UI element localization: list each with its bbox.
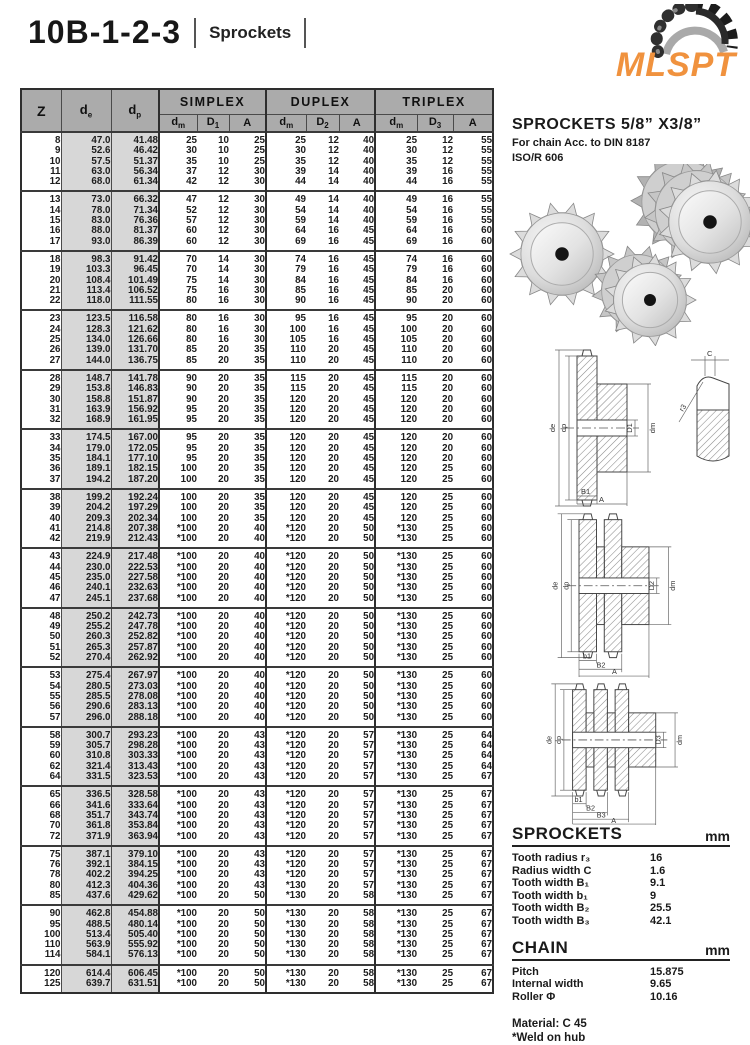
table-row: 32168.9161.9595203512020451202060 (21, 415, 493, 429)
table-cell: 25 (417, 594, 453, 608)
table-cell: 328.58 (111, 786, 159, 800)
table-cell: 20 (417, 384, 453, 394)
table-cell: 631.51 (111, 979, 159, 993)
table-cell: 35 (229, 489, 266, 503)
table-cell: 43 (229, 772, 266, 786)
table-cell: 60 (453, 702, 493, 712)
spec-label: Tooth width B₃ (512, 915, 650, 928)
table-cell: 40 (339, 132, 375, 146)
table-cell: *120 (266, 594, 306, 608)
table-cell: 43 (229, 832, 266, 846)
table-cell: *100 (159, 702, 197, 712)
chain-spec-header: CHAIN mm (512, 938, 730, 961)
table-cell: 90 (375, 296, 417, 310)
dim-label: B2 (586, 804, 595, 813)
table-cell: 86.39 (111, 237, 159, 251)
table-cell: 74 (375, 251, 417, 265)
table-cell: 45 (339, 429, 375, 443)
diagram-triplex-section: de dp D3 dm b1 B2 B3 A (540, 680, 750, 825)
table-cell: 429.62 (111, 891, 159, 905)
table-cell: 55 (453, 177, 493, 191)
table-cell: 153.8 (61, 384, 111, 394)
table-cell: 60 (453, 548, 493, 562)
table-cell: 25 (229, 132, 266, 146)
table-cell: 20 (197, 534, 229, 548)
spec-value: 9.65 (650, 978, 730, 991)
table-cell: 45 (339, 237, 375, 251)
table-cell: 57 (339, 821, 375, 831)
table-cell: 16 (197, 310, 229, 324)
table-cell: 18 (21, 251, 61, 265)
table-cell: *120 (266, 653, 306, 667)
table-cell: 58 (339, 979, 375, 993)
table-row: 22118.0111.55801630901645902060 (21, 296, 493, 310)
brand-logo: MLSPT (606, 4, 746, 84)
table-cell: 67 (453, 846, 493, 860)
table-cell: 146.83 (111, 384, 159, 394)
table-row: 27144.0136.7585203511020451102060 (21, 356, 493, 370)
table-cell: 20 (197, 653, 229, 667)
spec-row: Tooth width b₁9 (512, 890, 730, 903)
table-cell: 20 (306, 905, 339, 919)
table-cell: 20 (197, 846, 229, 860)
group-header-duplex: DUPLEX (266, 89, 375, 114)
table-cell: *120 (266, 727, 306, 741)
spec-row: Pitch15.875 (512, 966, 730, 979)
dim-label: b1 (575, 795, 583, 804)
table-cell: 20 (306, 608, 339, 622)
table-group: 38199.2192.2410020351202045120256039204.… (21, 489, 493, 548)
table-cell: 60 (453, 237, 493, 251)
table-cell: 12 (197, 191, 229, 205)
table-cell: 20 (197, 356, 229, 370)
table-cell: 25 (417, 772, 453, 786)
logo-text: MLSPT (616, 46, 738, 84)
table-cell: 25 (375, 132, 417, 146)
table-cell: *130 (375, 667, 417, 681)
page-title: 10B-1-2-3 (28, 14, 181, 51)
table-cell: *100 (159, 653, 197, 667)
table-cell: *100 (159, 905, 197, 919)
table-cell: 110 (375, 356, 417, 370)
table-cell: 17 (21, 237, 61, 251)
dim-label: de (548, 424, 557, 432)
table-cell: 50 (339, 608, 375, 622)
table-cell: 167.00 (111, 429, 159, 443)
chain-spec-title: CHAIN (512, 938, 568, 958)
table-cell: 70 (21, 821, 61, 831)
table-group: 90462.8454.88*1002050*1302058*1302567954… (21, 905, 493, 964)
table-cell: 58 (339, 891, 375, 905)
table-cell: 20 (306, 415, 339, 429)
table-cell: 25 (417, 821, 453, 831)
table-cell: *130 (375, 905, 417, 919)
table-cell: *100 (159, 891, 197, 905)
table-cell: 20 (306, 891, 339, 905)
table-row: 38199.2192.24100203512020451202560 (21, 489, 493, 503)
spec-value: 9 (650, 890, 730, 903)
table-cell: 14 (306, 177, 339, 191)
table-cell: *100 (159, 727, 197, 741)
table-cell: 20 (197, 370, 229, 384)
table-cell: 27 (21, 356, 61, 370)
table-cell: 50 (339, 594, 375, 608)
table-cell: *130 (375, 548, 417, 562)
table-cell: 60 (453, 489, 493, 503)
weld-note: *Weld on hub (512, 1031, 730, 1045)
table-cell: *120 (266, 608, 306, 622)
spec-row: Internal width9.65 (512, 978, 730, 991)
table-cell: 60 (453, 608, 493, 622)
chain-spec-rows: Pitch15.875Internal width9.65Roller Φ10.… (512, 966, 730, 1004)
table-cell: 50 (229, 950, 266, 964)
table-row: 33174.5167.0095203512020451202060 (21, 429, 493, 443)
table-cell: 323.53 (111, 772, 159, 786)
table-cell: 20 (197, 727, 229, 741)
table-cell: 576.13 (111, 950, 159, 964)
table-cell: 639.7 (61, 979, 111, 993)
table-cell: 50 (229, 891, 266, 905)
table-cell: *120 (266, 667, 306, 681)
table-row: 65336.5328.58*1002043*1202057*1302567 (21, 786, 493, 800)
table-cell: 25 (417, 713, 453, 727)
table-cell: 199.2 (61, 489, 111, 503)
table-cell: 270.4 (61, 653, 111, 667)
col-header-de: de (61, 89, 111, 132)
table-cell: *130 (375, 594, 417, 608)
table-cell: 55 (453, 191, 493, 205)
table-cell: 120 (266, 489, 306, 503)
table-cell: 20 (306, 489, 339, 503)
table-cell: 35 (229, 356, 266, 370)
table-cell: 20 (417, 415, 453, 429)
table-cell: 29 (21, 384, 61, 394)
table-cell: 60 (453, 415, 493, 429)
table-cell: 57 (339, 832, 375, 846)
table-cell: 20 (197, 503, 229, 513)
table-row: 75387.1379.10*1002043*1202057*1302567 (21, 846, 493, 860)
tooth-detail (697, 377, 729, 461)
table-cell: 25 (417, 727, 453, 741)
table-cell: 20 (197, 950, 229, 964)
table-cell: *120 (266, 772, 306, 786)
table-cell: *120 (266, 548, 306, 562)
table-cell: *130 (375, 965, 417, 979)
table-cell: 53 (21, 667, 61, 681)
table-cell: 35 (229, 429, 266, 443)
diagram-duplex-section: de dp D2 dm b1 B2 A (545, 508, 750, 678)
table-cell: 25 (417, 534, 453, 548)
table-cell: 100 (159, 503, 197, 513)
table-cell: 120 (266, 475, 306, 489)
table-cell: *130 (375, 846, 417, 860)
table-cell: 65 (21, 786, 61, 800)
spec-value: 10.16 (650, 991, 730, 1004)
table-cell: 45 (339, 503, 375, 513)
spec-value: 16 (650, 852, 730, 865)
spec-label: Roller Φ (512, 991, 650, 1004)
dim-label: D1 (625, 423, 634, 433)
table-cell: 50 (339, 667, 375, 681)
table-group: 33174.5167.009520351202045120206034179.0… (21, 429, 493, 488)
table-cell: 288.18 (111, 713, 159, 727)
sprocket-photos (500, 164, 750, 346)
table-cell: 25 (417, 489, 453, 503)
table-group: 48250.2242.73*1002040*1202050*1302560492… (21, 608, 493, 667)
spec-label: Tooth radius r₃ (512, 852, 650, 865)
table-cell: *120 (266, 832, 306, 846)
table-cell: 70 (159, 251, 197, 265)
table-cell: 387.1 (61, 846, 111, 860)
table-cell: 20 (306, 979, 339, 993)
table-cell: 45 (339, 370, 375, 384)
table-cell: *120 (266, 702, 306, 712)
table-cell: 40 (229, 653, 266, 667)
sprocket-table: Z de dp SIMPLEX DUPLEX TRIPLEX dmD1AdmD2… (20, 88, 494, 994)
table-cell: 50 (339, 653, 375, 667)
table-cell: 20 (306, 821, 339, 831)
table-cell: 25 (417, 846, 453, 860)
table-cell: 85 (159, 356, 197, 370)
table-cell: 20 (197, 979, 229, 993)
table-cell: 114 (21, 950, 61, 964)
table-cell: 69 (375, 237, 417, 251)
table-cell: 50 (339, 548, 375, 562)
table-cell: 20 (197, 608, 229, 622)
table-cell: 45 (339, 310, 375, 324)
chain-info: SPROCKETS 5/8” X3/8” For chain Acc. to D… (512, 116, 748, 164)
table-cell: 20 (306, 727, 339, 741)
col-header: A (453, 114, 493, 132)
table-cell: 67 (453, 891, 493, 905)
table-cell: 20 (197, 594, 229, 608)
table-cell: 250.2 (61, 608, 111, 622)
sprockets-spec-rows: Tooth radius r₃16Radius width C1.6Tooth … (512, 852, 730, 928)
table-cell: 120 (375, 475, 417, 489)
table-cell: 20 (306, 653, 339, 667)
table-cell: 20 (197, 415, 229, 429)
dim-label: A (599, 495, 604, 504)
catalog-page: { "header": { "title": "10B-1-2-3", "sub… (0, 0, 750, 1036)
table-cell: 20 (197, 548, 229, 562)
table-cell: 52 (21, 653, 61, 667)
table-cell: 20 (306, 832, 339, 846)
table-cell: 20 (306, 965, 339, 979)
table-cell: 47 (21, 594, 61, 608)
table-cell: 43 (229, 821, 266, 831)
table-cell: 49 (375, 191, 417, 205)
table-cell: 25 (417, 653, 453, 667)
table-cell: 110 (266, 356, 306, 370)
table-cell: 120 (375, 429, 417, 443)
table-cell: *130 (375, 979, 417, 993)
table-cell: 16 (417, 251, 453, 265)
table-cell: 20 (197, 891, 229, 905)
table-cell: 45 (339, 251, 375, 265)
table-cell: 10 (197, 132, 229, 146)
table-cell: 100 (159, 475, 197, 489)
table-cell: 57 (339, 772, 375, 786)
col-header: dm (375, 114, 417, 132)
table-cell: 40 (229, 667, 266, 681)
table-cell: 45 (339, 475, 375, 489)
table-cell: 20 (306, 534, 339, 548)
table-cell: 123.5 (61, 310, 111, 324)
table-cell: 16 (306, 251, 339, 265)
table-cell: 93.0 (61, 237, 111, 251)
table-cell: 437.6 (61, 891, 111, 905)
table-cell: 120 (266, 415, 306, 429)
table-cell: 47 (159, 191, 197, 205)
table-cell: 606.45 (111, 965, 159, 979)
table-cell: 61.34 (111, 177, 159, 191)
table-row: 57296.0288.18*1002040*1202050*1302560 (21, 713, 493, 727)
table-cell: 64 (21, 772, 61, 786)
table-cell: 60 (453, 429, 493, 443)
table-cell: 20 (197, 702, 229, 712)
table-cell: 40 (229, 534, 266, 548)
table-group: 28148.7141.789020351152045115206029153.8… (21, 370, 493, 429)
table-cell: 43 (229, 727, 266, 741)
group-header-simplex: SIMPLEX (159, 89, 266, 114)
table-cell: 90 (159, 384, 197, 394)
table-group: 23123.5116.5880163095164595206024128.312… (21, 310, 493, 369)
table-cell: 69 (266, 237, 306, 251)
table-cell: 16 (306, 296, 339, 310)
table-cell: 20 (417, 310, 453, 324)
table-cell: 25 (417, 702, 453, 712)
table-cell: *100 (159, 772, 197, 786)
table-cell: 25 (417, 950, 453, 964)
simplex-sprocket-photo (510, 203, 614, 304)
page-subtitle: Sprockets (209, 23, 291, 43)
spec-value: 42.1 (650, 915, 730, 928)
dim-label: r3 (677, 403, 688, 413)
table-cell: 20 (306, 772, 339, 786)
table-cell: 20 (197, 713, 229, 727)
table-cell: *130 (375, 786, 417, 800)
table-cell: *100 (159, 608, 197, 622)
table-cell: 237.68 (111, 594, 159, 608)
table-cell: 219.9 (61, 534, 111, 548)
table-cell: 20 (306, 594, 339, 608)
table-cell: 293.23 (111, 727, 159, 741)
table-row: 1373.066.32471230491440491655 (21, 191, 493, 205)
table-cell: 57 (339, 786, 375, 800)
table-cell: 60 (453, 356, 493, 370)
table-cell: *130 (266, 965, 306, 979)
spec-row: Tooth width B₃42.1 (512, 915, 730, 928)
table-cell: 45 (339, 415, 375, 429)
table-cell: 30 (229, 310, 266, 324)
table-cell: *100 (159, 594, 197, 608)
table-cell: 300.7 (61, 727, 111, 741)
spec-value: 1.6 (650, 865, 730, 878)
table-cell: *120 (266, 821, 306, 831)
table-cell: 60 (453, 667, 493, 681)
notes: Material: C 45 *Weld on hub (512, 1017, 730, 1045)
table-cell: 242.73 (111, 608, 159, 622)
table-cell: 14 (197, 251, 229, 265)
table-row: 47245.1237.68*1002040*1202050*1302560 (21, 594, 493, 608)
table-cell: 20 (197, 772, 229, 786)
table-cell: 33 (21, 429, 61, 443)
duplex-sprocket-photo (592, 246, 696, 345)
table-cell: 40 (339, 177, 375, 191)
table-cell: 50 (229, 965, 266, 979)
table-row: 90462.8454.88*1002050*1302058*1302567 (21, 905, 493, 919)
table-cell: *130 (375, 950, 417, 964)
table-cell: 120 (266, 503, 306, 513)
table-cell: 64 (453, 727, 493, 741)
table-cell: 95 (266, 310, 306, 324)
table-cell: 80 (159, 310, 197, 324)
table-cell: 111.55 (111, 296, 159, 310)
table-cell: 44 (266, 177, 306, 191)
table-cell: 60 (453, 251, 493, 265)
table-cell: 50 (339, 713, 375, 727)
table-cell: 60 (453, 713, 493, 727)
table-cell: 60 (453, 475, 493, 489)
table-cell: *130 (375, 702, 417, 712)
table-cell: 22 (21, 296, 61, 310)
table-group: 65336.5328.58*1002043*1202057*1302567663… (21, 786, 493, 845)
table-cell: 48 (21, 608, 61, 622)
table-cell: 25 (417, 475, 453, 489)
table-cell: 462.8 (61, 905, 111, 919)
table-cell: 57 (339, 846, 375, 860)
table-cell: 91.42 (111, 251, 159, 265)
table-cell: 20 (417, 356, 453, 370)
table-cell: 45 (339, 296, 375, 310)
table-cell: 20 (306, 548, 339, 562)
table-cell: 194.2 (61, 475, 111, 489)
table-cell: 16 (417, 237, 453, 251)
table-cell: 25 (417, 905, 453, 919)
table-cell: 20 (306, 475, 339, 489)
table-cell: 16 (306, 310, 339, 324)
table-cell: 25 (417, 891, 453, 905)
table-cell: 290.6 (61, 702, 111, 712)
table-cell: 16 (417, 191, 453, 205)
table-cell: 20 (306, 384, 339, 394)
spec-value: 9.1 (650, 877, 730, 890)
table-cell: 37 (21, 475, 61, 489)
table-cell: *130 (375, 891, 417, 905)
table-cell: *100 (159, 821, 197, 831)
col-header: D2 (306, 114, 339, 132)
table-cell: *100 (159, 534, 197, 548)
table-cell: 20 (197, 429, 229, 443)
table-cell: 115 (375, 384, 417, 394)
table-cell: 57 (339, 727, 375, 741)
table-cell: 95 (375, 310, 417, 324)
table-cell: 67 (453, 772, 493, 786)
table-cell: *100 (159, 965, 197, 979)
table-cell: 192.24 (111, 489, 159, 503)
table-cell: 80 (159, 296, 197, 310)
info-line-2: ISO/R 606 (512, 152, 748, 164)
table-cell: 212.43 (111, 534, 159, 548)
table-cell: 90 (21, 905, 61, 919)
table-cell: 50 (229, 979, 266, 993)
table-cell: 40 (229, 702, 266, 712)
table-group: 58300.7293.23*1002043*1202057*1302564593… (21, 727, 493, 786)
table-cell: 20 (306, 370, 339, 384)
title-divider (194, 18, 196, 48)
table-cell: 25 (417, 548, 453, 562)
table-cell: 25 (159, 132, 197, 146)
